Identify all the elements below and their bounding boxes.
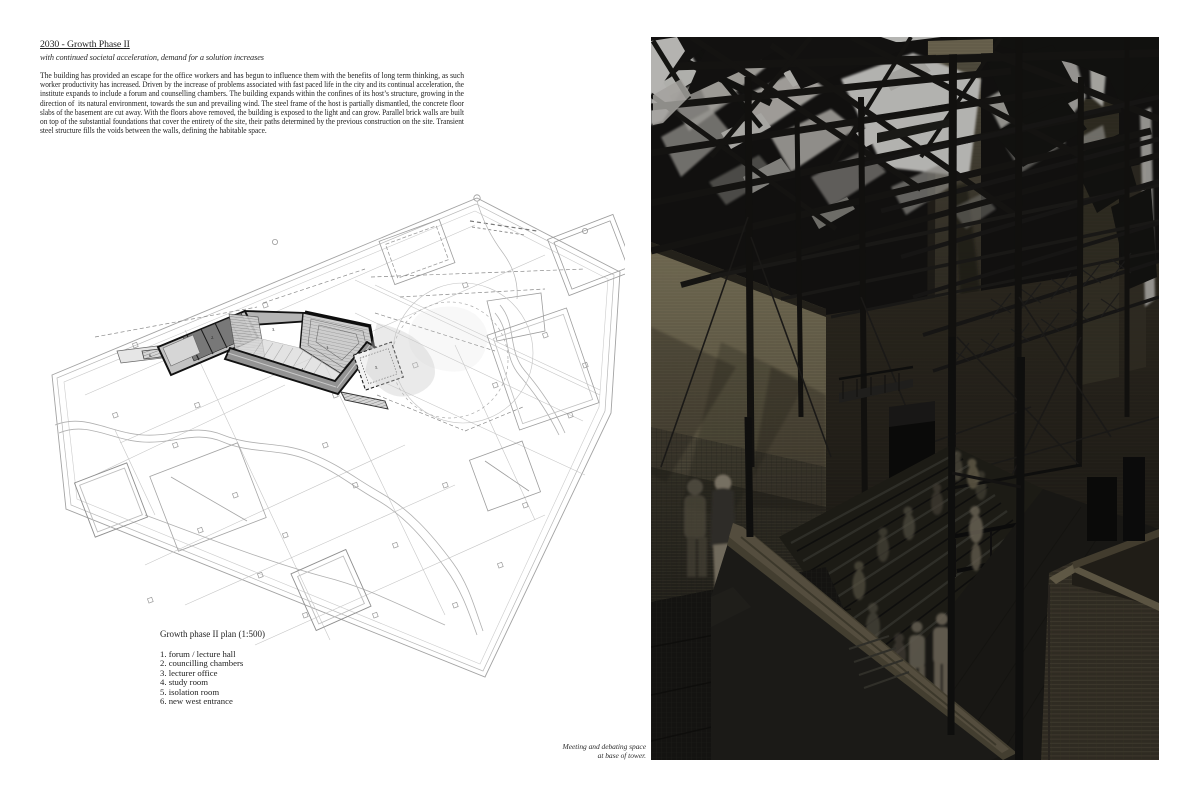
svg-text:1.: 1. bbox=[326, 345, 329, 350]
svg-text:3.: 3. bbox=[272, 327, 275, 332]
svg-text:4.: 4. bbox=[301, 367, 304, 372]
svg-text:6.: 6. bbox=[149, 353, 152, 358]
svg-text:2.: 2. bbox=[211, 335, 214, 340]
svg-text:5.: 5. bbox=[375, 365, 378, 370]
